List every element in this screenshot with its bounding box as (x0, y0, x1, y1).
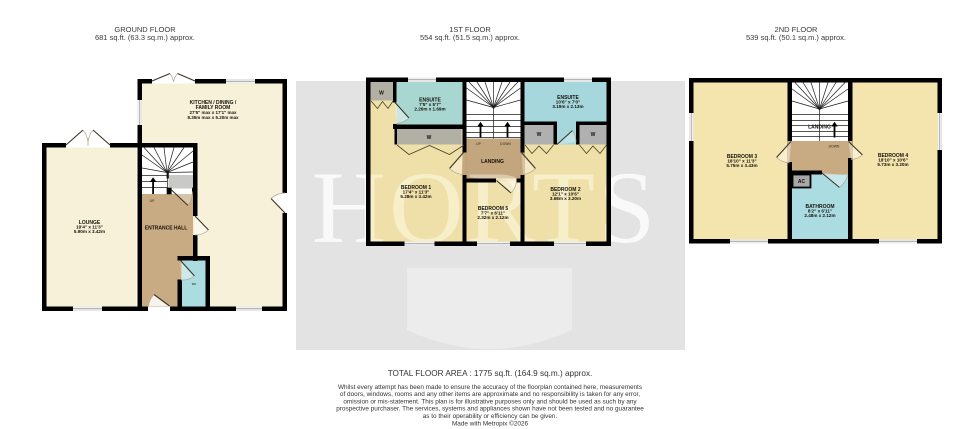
svg-text:2.32m x 2.12m: 2.32m x 2.12m (477, 215, 508, 220)
svg-text:Made with Metropix ©2026: Made with Metropix ©2026 (452, 419, 529, 427)
svg-text:5.28m x 3.42m: 5.28m x 3.42m (400, 194, 431, 199)
svg-text:5.73m x 3.20m: 5.73m x 3.20m (877, 162, 908, 167)
svg-text:UP: UP (150, 199, 155, 203)
svg-text:of doors, windows, rooms and a: of doors, windows, rooms and any other i… (340, 391, 640, 398)
svg-text:2.48m x 2.12m: 2.48m x 2.12m (804, 213, 835, 218)
svg-text:681 sq.ft. (63.3 sq.m.) approx: 681 sq.ft. (63.3 sq.m.) approx. (95, 33, 195, 42)
svg-text:DOWN: DOWN (500, 142, 511, 146)
svg-text:TOTAL FLOOR AREA : 1775 sq.ft.: TOTAL FLOOR AREA : 1775 sq.ft. (164.9 sq… (388, 369, 593, 378)
svg-text:prospective purchaser. The ser: prospective purchaser. The services, sys… (336, 406, 644, 413)
svg-text:2.26m x 1.69m: 2.26m x 1.69m (414, 106, 445, 111)
svg-text:W: W (427, 135, 432, 141)
svg-text:3.68m x 3.20m: 3.68m x 3.20m (550, 196, 581, 201)
svg-text:3.19m x 2.13m: 3.19m x 2.13m (552, 104, 583, 109)
svg-text:W: W (591, 132, 596, 138)
svg-text:5.75m x 3.43m: 5.75m x 3.43m (726, 163, 757, 168)
svg-text:wc: wc (191, 282, 197, 286)
svg-text:8.35m max x 5.20m max: 8.35m max x 5.20m max (187, 115, 239, 120)
svg-text:as to their operability or eff: as to their operability or efficiency ca… (423, 413, 558, 420)
svg-text:5.90m x 3.42m: 5.90m x 3.42m (74, 229, 105, 234)
svg-text:W: W (379, 90, 384, 96)
svg-text:554 sq.ft. (51.5 sq.m.) approx: 554 sq.ft. (51.5 sq.m.) approx. (420, 33, 520, 42)
svg-text:omission or mis-statement. Thi: omission or mis-statement. This plan is … (343, 398, 637, 405)
svg-text:Whilst every attempt has been: Whilst every attempt has been made to en… (338, 384, 642, 391)
svg-text:AC: AC (798, 179, 806, 185)
svg-text:LANDING: LANDING (481, 159, 504, 165)
svg-text:DOWN: DOWN (829, 144, 840, 148)
svg-text:W: W (537, 132, 542, 138)
svg-text:539 sq.ft. (50.1 sq.m.) approx: 539 sq.ft. (50.1 sq.m.) approx. (746, 33, 846, 42)
svg-text:UP: UP (476, 142, 481, 146)
svg-text:LANDING: LANDING (808, 125, 831, 131)
svg-text:ENTRANCE HALL: ENTRANCE HALL (145, 225, 188, 231)
